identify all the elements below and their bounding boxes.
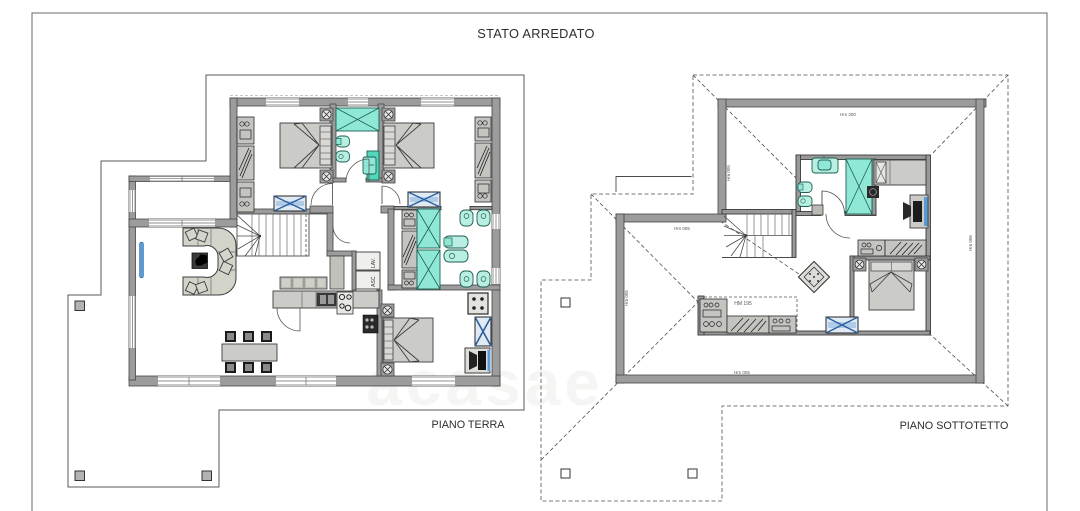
svg-text:ASC.: ASC. xyxy=(371,275,377,287)
svg-text:PIANO TERRA: PIANO TERRA xyxy=(432,419,506,431)
svg-text:HM 195: HM 195 xyxy=(734,301,752,307)
svg-text:STATO ARREDATO: STATO ARREDATO xyxy=(477,26,595,41)
svg-text:Hm 005: Hm 005 xyxy=(726,165,731,181)
svg-text:LAV.: LAV. xyxy=(371,258,377,268)
svg-text:PIANO SOTTOTETTO: PIANO SOTTOTETTO xyxy=(900,420,1009,432)
svg-text:Hm 005: Hm 005 xyxy=(734,370,750,375)
svg-text:Hm 006: Hm 006 xyxy=(968,235,973,251)
svg-text:Hm 005: Hm 005 xyxy=(674,226,690,231)
svg-text:Hm 200: Hm 200 xyxy=(840,112,856,117)
svg-text:Hm 005: Hm 005 xyxy=(624,290,629,306)
